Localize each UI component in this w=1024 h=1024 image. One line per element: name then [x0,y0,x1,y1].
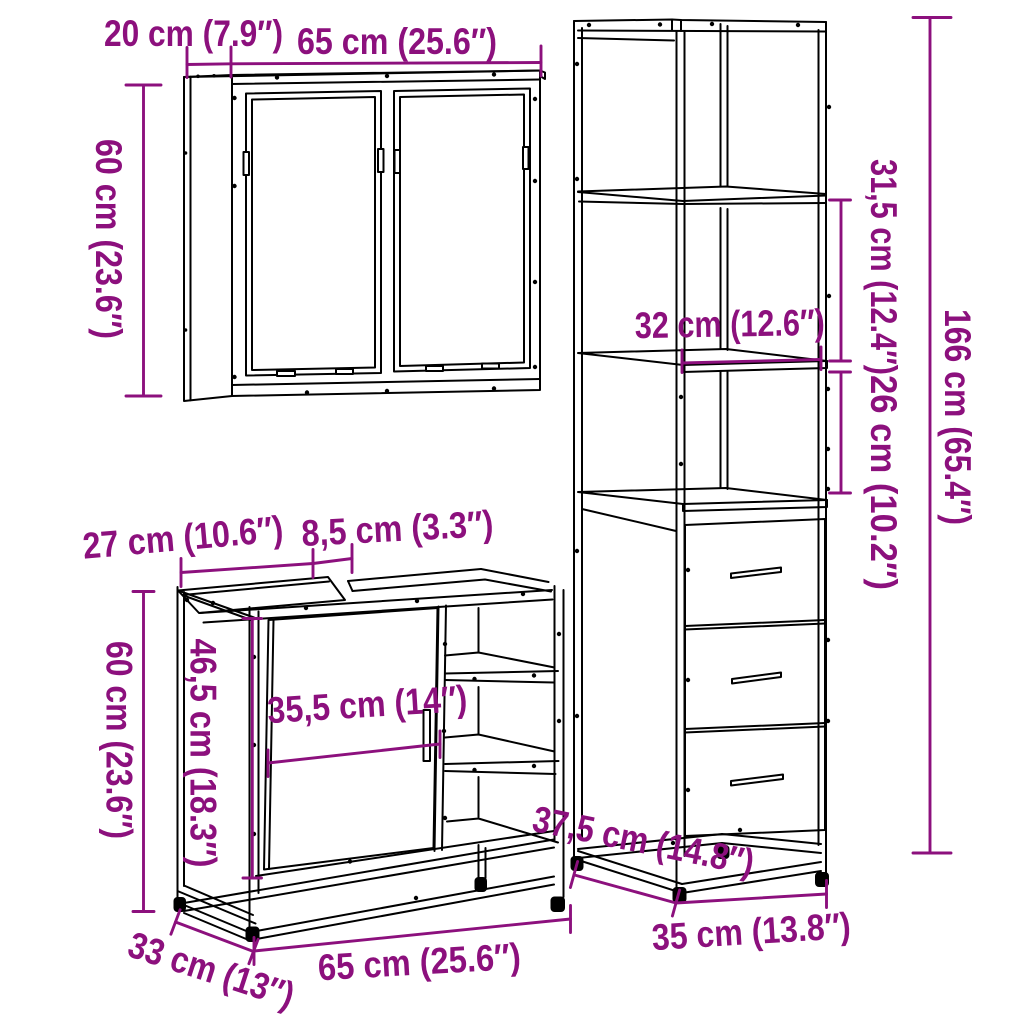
svg-text:60 cm (23.6″): 60 cm (23.6″) [99,641,140,839]
svg-text:31,5 cm (12.4″): 31,5 cm (12.4″) [863,159,904,375]
svg-text:33 cm (13″): 33 cm (13″) [123,924,299,1016]
svg-text:35 cm (13.8″): 35 cm (13.8″) [651,905,852,958]
svg-text:20 cm (7.9″): 20 cm (7.9″) [104,13,283,54]
svg-text:27 cm (10.6″): 27 cm (10.6″) [81,508,285,566]
svg-text:26 cm (10.2″): 26 cm (10.2″) [863,375,904,590]
svg-text:32 cm (12.6″): 32 cm (12.6″) [634,302,825,346]
svg-text:46,5 cm (18.3″): 46,5 cm (18.3″) [183,639,224,868]
svg-text:8,5 cm (3.3″): 8,5 cm (3.3″) [300,503,494,554]
svg-text:65 cm (25.6″): 65 cm (25.6″) [317,936,522,989]
svg-text:60 cm (23.6″): 60 cm (23.6″) [88,139,129,339]
svg-text:65 cm (25.6″): 65 cm (25.6″) [297,21,497,62]
svg-text:166 cm (65.4″): 166 cm (65.4″) [937,309,978,525]
svg-text:35,5 cm (14″): 35,5 cm (14″) [266,678,468,731]
